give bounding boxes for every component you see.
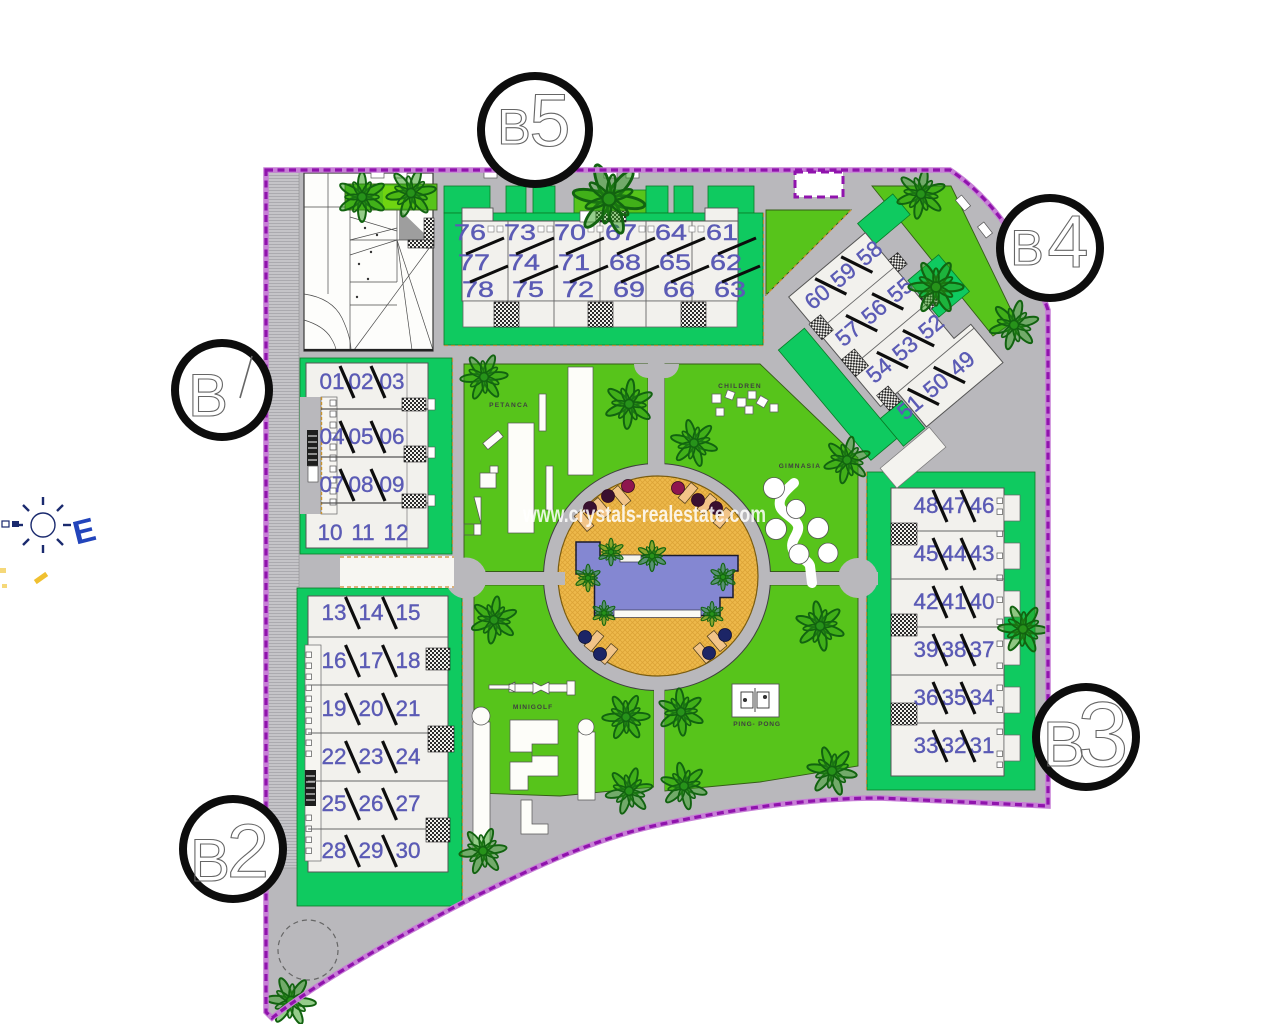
svg-text:63: 63: [714, 277, 746, 302]
svg-text:PETANCA: PETANCA: [489, 402, 529, 409]
svg-text:14: 14: [358, 600, 383, 625]
svg-text:B: B: [190, 827, 230, 894]
svg-text:74: 74: [508, 250, 540, 275]
svg-text:B: B: [1010, 220, 1043, 276]
svg-text:71: 71: [558, 250, 590, 275]
svg-text:62: 62: [710, 250, 742, 275]
svg-text:66: 66: [663, 277, 695, 302]
svg-text:27: 27: [395, 791, 420, 816]
svg-text:01: 01: [319, 369, 344, 394]
svg-text:25: 25: [321, 791, 346, 816]
svg-text:GIMNASIA: GIMNASIA: [779, 463, 822, 470]
svg-text:21: 21: [395, 696, 420, 721]
svg-text:65: 65: [659, 250, 691, 275]
svg-text:10: 10: [317, 520, 342, 545]
svg-text:18: 18: [395, 648, 420, 673]
svg-text:72: 72: [562, 277, 594, 302]
svg-text:17: 17: [358, 648, 383, 673]
svg-text:07: 07: [319, 472, 344, 497]
svg-text:69: 69: [613, 277, 645, 302]
svg-text:61: 61: [706, 220, 738, 245]
svg-text:28: 28: [321, 838, 346, 863]
svg-text:CHILDREN: CHILDREN: [718, 383, 762, 390]
svg-text:30: 30: [395, 838, 420, 863]
svg-text:76: 76: [454, 220, 486, 245]
svg-text:23: 23: [358, 744, 383, 769]
svg-text:77: 77: [458, 250, 490, 275]
svg-text:16: 16: [321, 648, 346, 673]
svg-text:12: 12: [383, 520, 408, 545]
svg-text:70: 70: [554, 220, 586, 245]
svg-text:64: 64: [655, 220, 687, 245]
svg-text:B: B: [188, 362, 228, 429]
svg-text:22: 22: [321, 744, 346, 769]
svg-text:15: 15: [395, 600, 420, 625]
svg-text:4: 4: [1047, 200, 1088, 283]
svg-text:www.crystals-realestate.com: www.crystals-realestate.com: [522, 501, 766, 527]
svg-text:13: 13: [321, 600, 346, 625]
svg-text:PING- PONG: PING- PONG: [733, 721, 781, 728]
svg-text:68: 68: [609, 250, 641, 275]
svg-text:B: B: [497, 99, 530, 155]
svg-text:19: 19: [321, 696, 346, 721]
svg-text:78: 78: [462, 277, 494, 302]
svg-text:29: 29: [358, 838, 383, 863]
svg-text:20: 20: [358, 696, 383, 721]
svg-text:11: 11: [351, 520, 374, 545]
svg-text:MINIGOLF: MINIGOLF: [513, 704, 553, 711]
svg-text:3: 3: [1077, 684, 1128, 786]
svg-text:2: 2: [227, 809, 269, 894]
svg-text:24: 24: [395, 744, 420, 769]
svg-text:04: 04: [319, 424, 344, 449]
svg-text:73: 73: [504, 220, 536, 245]
svg-text:26: 26: [358, 791, 383, 816]
svg-text:5: 5: [529, 79, 570, 162]
svg-text:75: 75: [512, 277, 544, 302]
